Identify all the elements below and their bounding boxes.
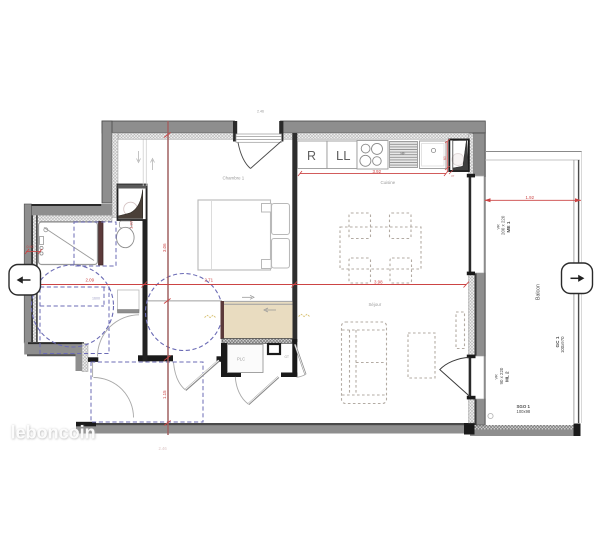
svg-text:Séjour: Séjour <box>369 302 382 307</box>
svg-text:3.92: 3.92 <box>373 169 382 174</box>
svg-text:1.92: 1.92 <box>526 195 535 200</box>
svg-text:3.98: 3.98 <box>374 280 383 285</box>
svg-text:90 x 220: 90 x 220 <box>499 367 504 384</box>
svg-text:100x98: 100x98 <box>517 409 531 414</box>
svg-text:HF: HF <box>401 152 407 156</box>
svg-text:R: R <box>307 149 316 163</box>
svg-text:2.09: 2.09 <box>86 278 95 283</box>
svg-text:100x970: 100x970 <box>560 336 565 353</box>
svg-text:2.71: 2.71 <box>205 278 214 283</box>
svg-text:37: 37 <box>451 174 455 178</box>
svg-text:200 x 220: 200 x 220 <box>501 215 506 235</box>
svg-text:1.15: 1.15 <box>162 390 167 399</box>
svg-text:LL: LL <box>336 148 350 163</box>
svg-text:0.90: 0.90 <box>27 245 34 249</box>
svg-text:2.46: 2.46 <box>159 446 168 451</box>
svg-text:GC 1: GC 1 <box>555 336 560 347</box>
svg-text:Balcon: Balcon <box>536 284 542 300</box>
svg-text:leboncoin: leboncoin <box>11 422 96 442</box>
svg-text:ML 2: ML 2 <box>505 371 510 382</box>
svg-text:Chambre 1: Chambre 1 <box>223 176 245 181</box>
svg-text:GT: GT <box>285 355 289 359</box>
svg-text:2.46: 2.46 <box>257 109 264 113</box>
svg-text:VR: VR <box>495 374 499 380</box>
svg-text:PLC: PLC <box>237 357 245 362</box>
svg-text:1.20: 1.20 <box>129 220 134 229</box>
svg-text:3.06: 3.06 <box>162 243 167 252</box>
svg-text:1600: 1600 <box>92 296 100 300</box>
svg-text:ME 1: ME 1 <box>506 221 511 232</box>
svg-text:60: 60 <box>443 156 447 160</box>
svg-text:Cuisine: Cuisine <box>381 180 396 185</box>
